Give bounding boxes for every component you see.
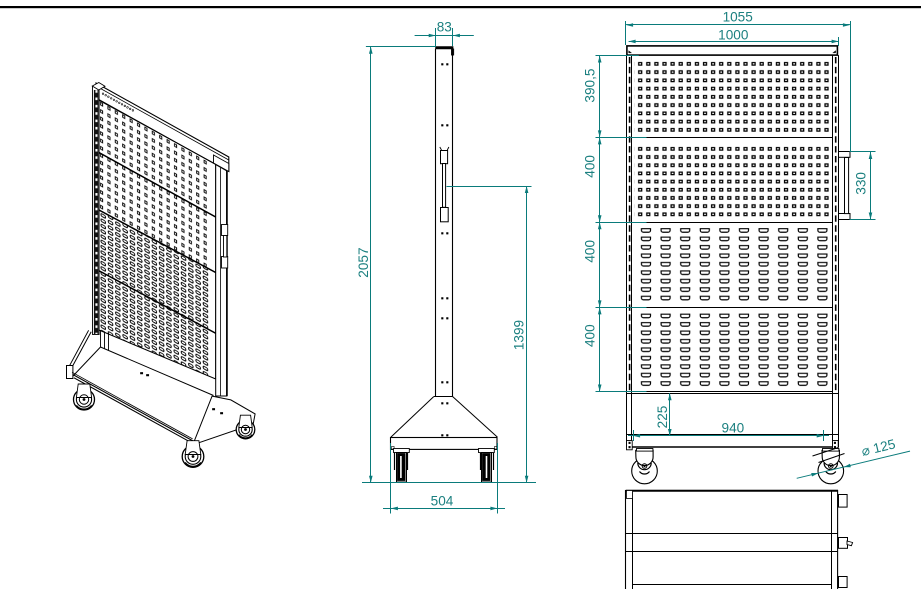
svg-text:940: 940 (722, 421, 745, 436)
svg-text:225: 225 (655, 406, 670, 429)
svg-text:1000: 1000 (718, 27, 749, 42)
svg-text:1399: 1399 (512, 320, 527, 350)
svg-text:400: 400 (583, 155, 598, 178)
svg-text:390,5: 390,5 (583, 69, 598, 103)
svg-text:2057: 2057 (356, 247, 371, 277)
svg-text:83: 83 (437, 20, 452, 35)
svg-text:504: 504 (431, 494, 454, 509)
svg-text:330: 330 (854, 172, 869, 195)
svg-text:1055: 1055 (723, 10, 753, 25)
svg-text:400: 400 (583, 324, 598, 347)
svg-text:400: 400 (583, 240, 598, 263)
